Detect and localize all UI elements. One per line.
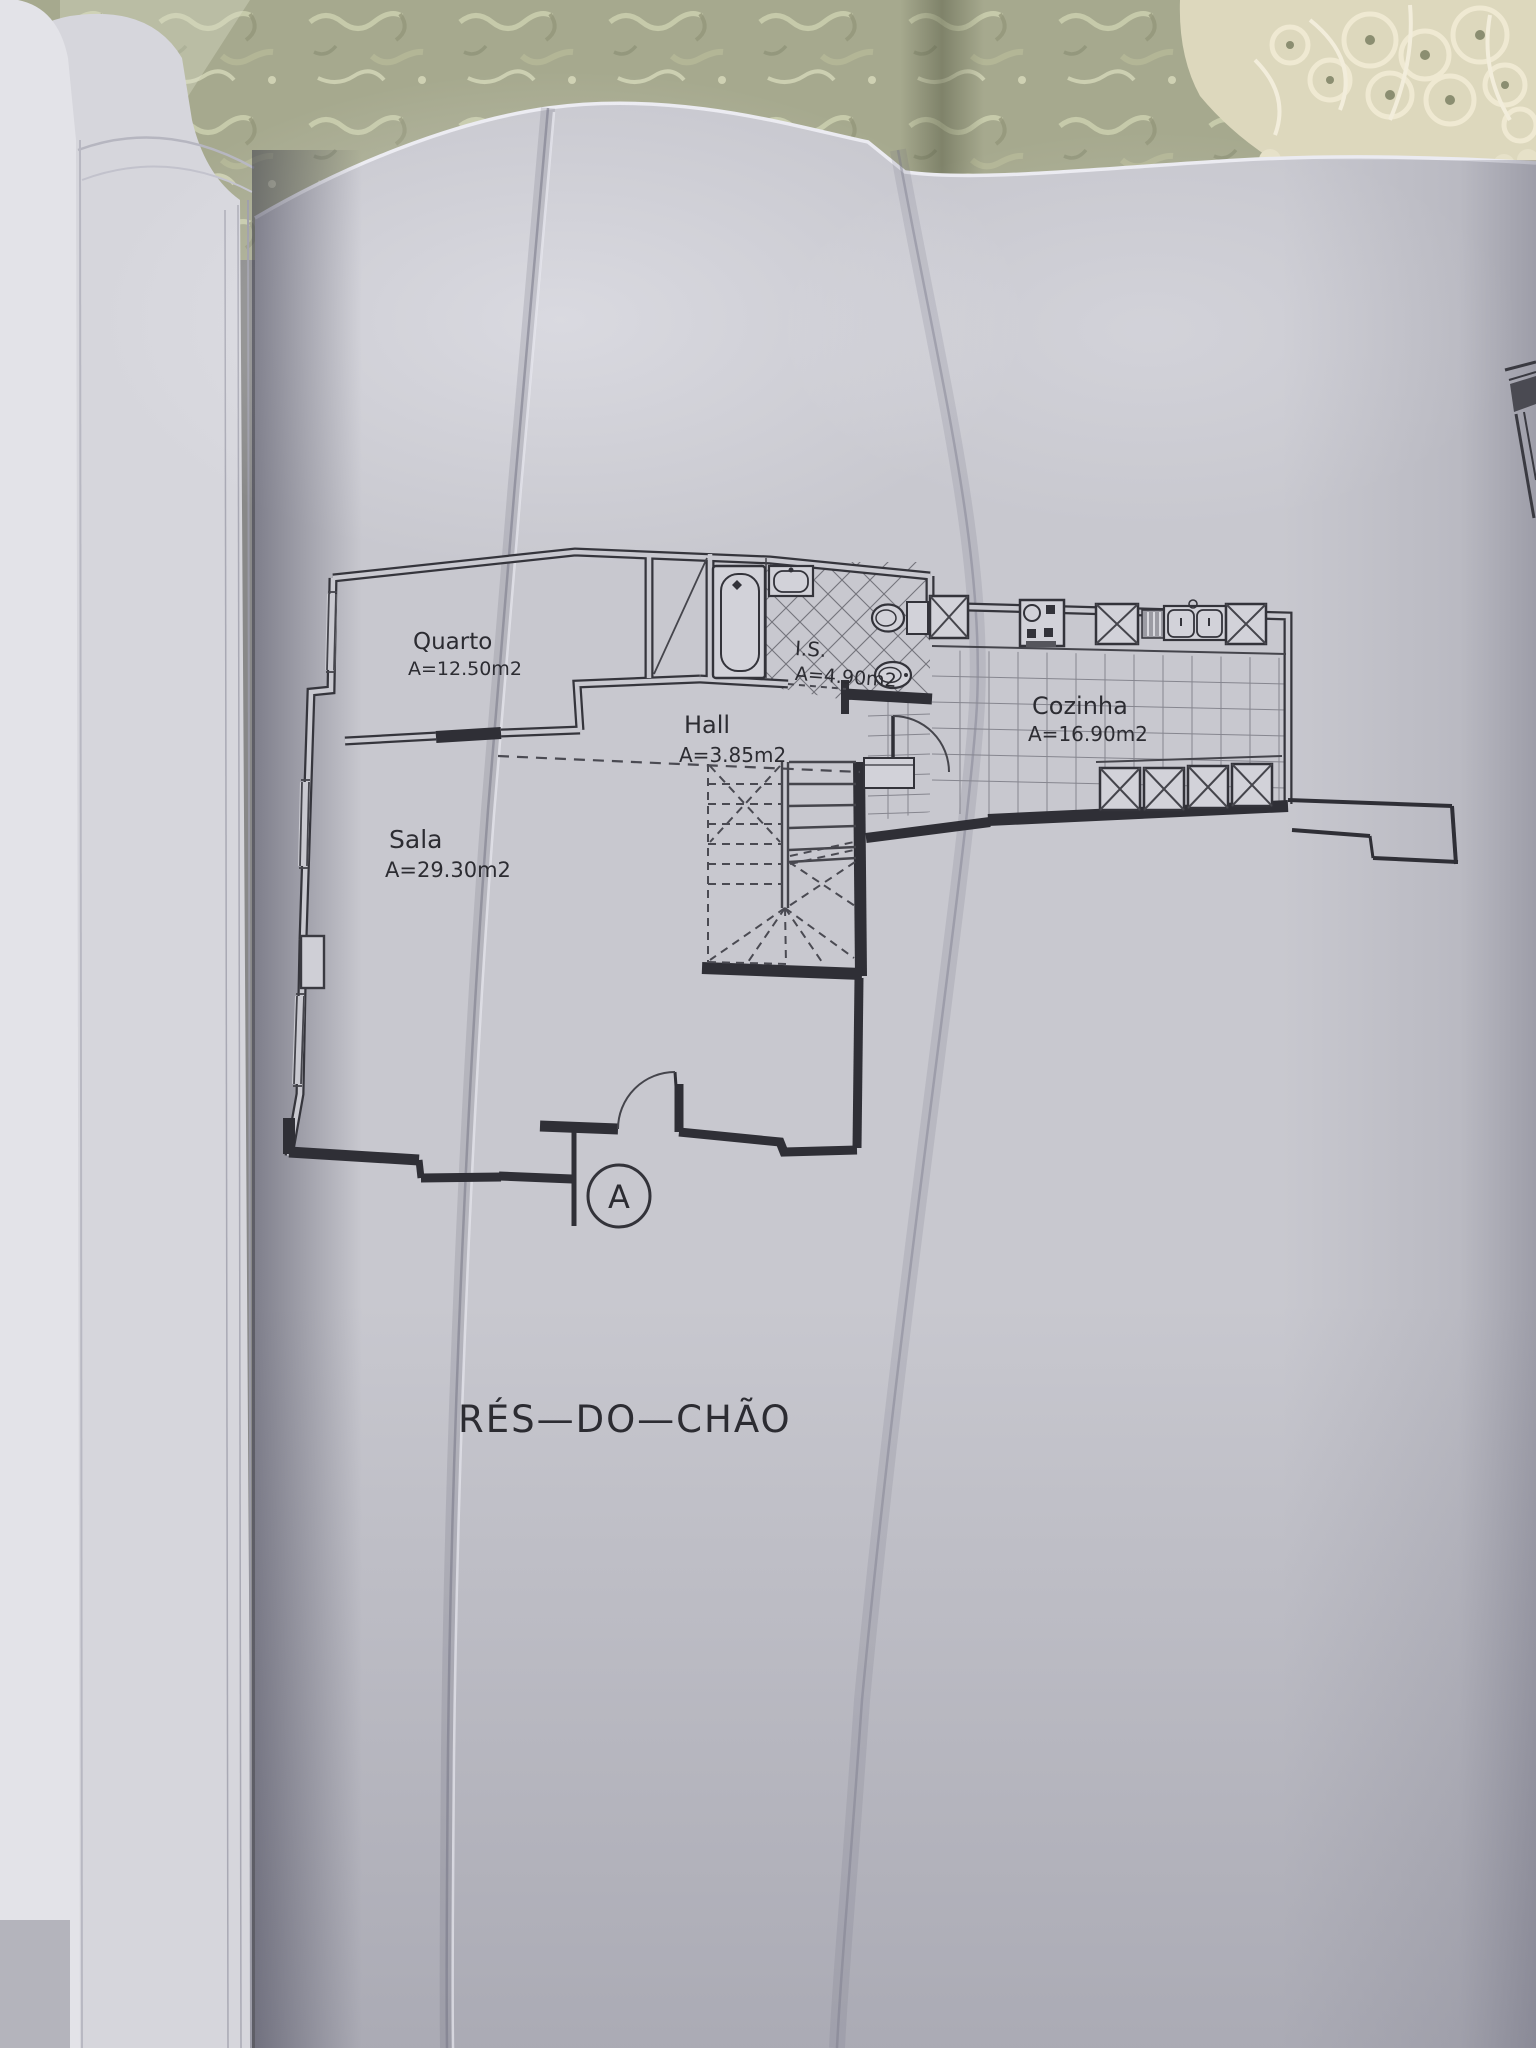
room-label-is: I.S. [794,636,827,662]
counter-shelf [864,758,914,788]
room-label-hall: Hall [684,711,730,739]
appliance-box-icon [1096,604,1138,644]
kitchen-sink-icon [1164,600,1226,640]
room-area-sala: A=29.30m2 [385,858,511,882]
room-area-quarto: A=12.50m2 [408,658,522,680]
appliance-box-icon [1232,764,1272,806]
room-label-cozinha: Cozinha [1032,692,1128,720]
room-area-cozinha: A=16.90m2 [1028,722,1148,746]
floor-title: RÉS—DO—CHÃO [458,1397,792,1441]
wall-pier [301,936,324,988]
appliance-box-icon [930,596,968,638]
room-label-sala: Sala [389,825,442,854]
quarto-door-threshold [436,733,501,737]
room-label-quarto: Quarto [413,629,492,655]
room-area-hall: A=3.85m2 [679,743,786,767]
book-page [90,70,1536,2048]
appliance-box-icon [1188,766,1228,808]
appliance-box-icon [1144,768,1184,810]
dish-drainer-icon [1142,610,1166,638]
washbasin-icon [769,566,813,596]
bathtub-icon [713,566,765,678]
photo-of-floor-plan-page: Quarto A=12.50m2 Sala A=29.30m2 Hall A=3… [0,0,1536,2048]
appliance-box-icon [1100,768,1140,810]
section-marker-letter: A [608,1178,630,1216]
appliance-box-icon [1226,604,1266,644]
stove-icon [1020,600,1064,647]
